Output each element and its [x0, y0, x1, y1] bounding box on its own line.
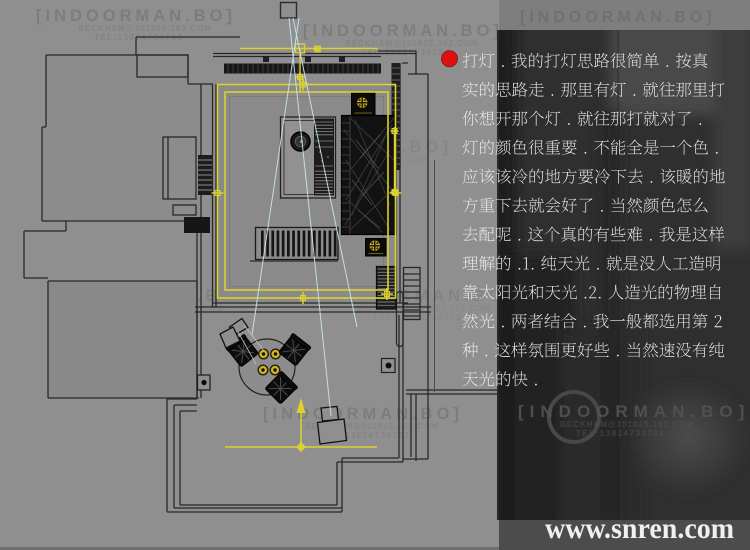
svg-text:[INDOORMAN.BO]: [INDOORMAN.BO] — [303, 22, 503, 40]
svg-text:[INDOORMAN.BO]: [INDOORMAN.BO] — [520, 9, 716, 26]
svg-text:BECKHAM@101925.163.COM: BECKHAM@101925.163.COM — [78, 24, 212, 33]
svg-text:[INDOORMAN.BO]: [INDOORMAN.BO] — [518, 402, 750, 421]
svg-text:www.snren.com: www.snren.com — [545, 512, 734, 545]
svg-text:BECKHAM@101925.163.COM: BECKHAM@101925.163.COM — [345, 39, 479, 48]
svg-text:TEL:13824734732: TEL:13824734732 — [576, 429, 665, 438]
svg-text:[INDOORMAN.BO]: [INDOORMAN.BO] — [263, 405, 463, 423]
svg-text:TEL:13824734732: TEL:13824734732 — [373, 313, 462, 322]
svg-text:BECKHAM@101925.163.COM: BECKHAM@101925.163.COM — [560, 420, 694, 429]
svg-text:[INDOORMAN.BO]: [INDOORMAN.BO] — [36, 7, 236, 25]
svg-text:TEL:13824734732: TEL:13824734732 — [361, 48, 450, 57]
